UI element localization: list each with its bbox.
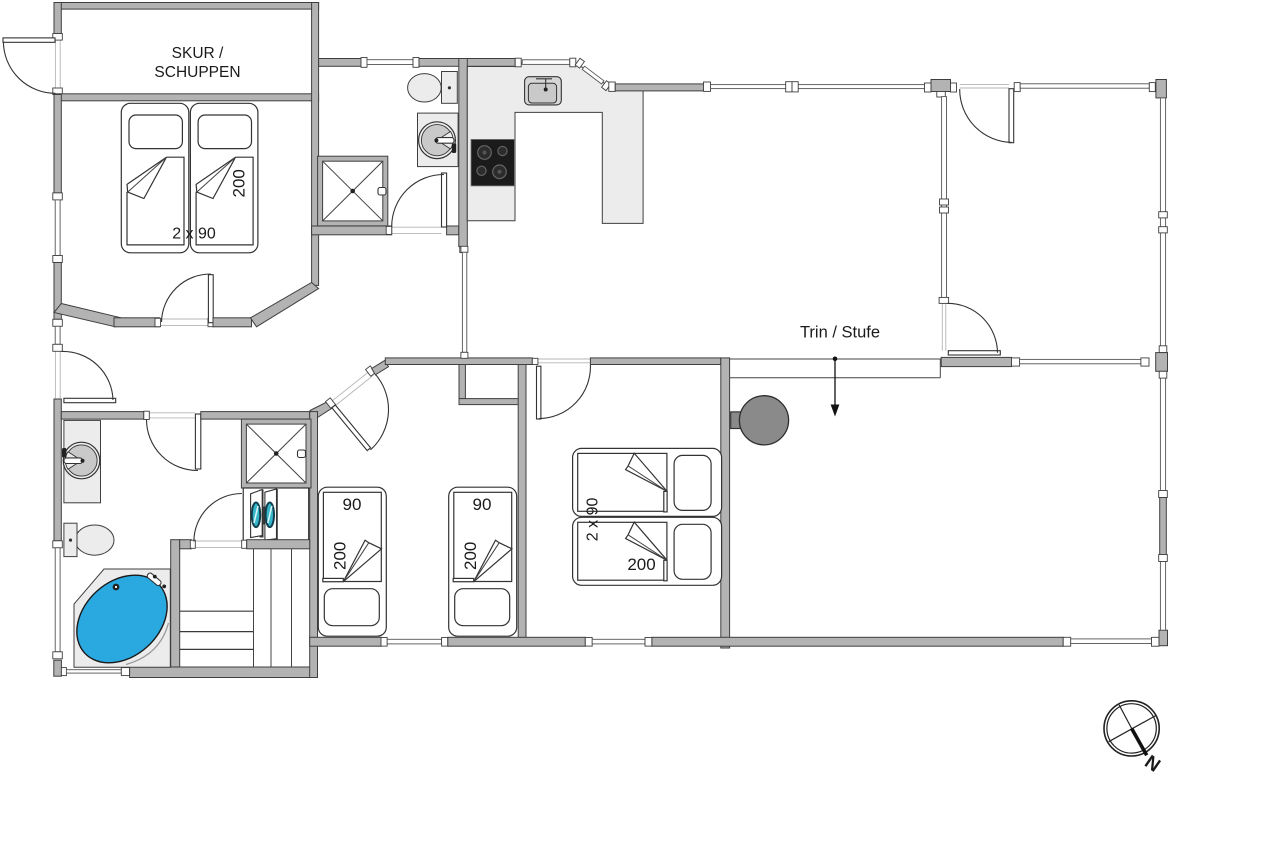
- svg-text:Trin / Stufe: Trin / Stufe: [800, 324, 880, 342]
- svg-text:200: 200: [461, 542, 480, 570]
- svg-text:90: 90: [473, 495, 492, 514]
- svg-text:200: 200: [331, 542, 350, 570]
- svg-text:2 x 90: 2 x 90: [172, 226, 216, 243]
- svg-text:200: 200: [627, 555, 655, 574]
- svg-text:90: 90: [343, 495, 362, 514]
- svg-text:SCHUPPEN: SCHUPPEN: [154, 64, 240, 81]
- svg-text:2 x 90: 2 x 90: [585, 498, 602, 542]
- svg-text:SKUR /: SKUR /: [172, 45, 224, 62]
- svg-text:200: 200: [230, 169, 249, 197]
